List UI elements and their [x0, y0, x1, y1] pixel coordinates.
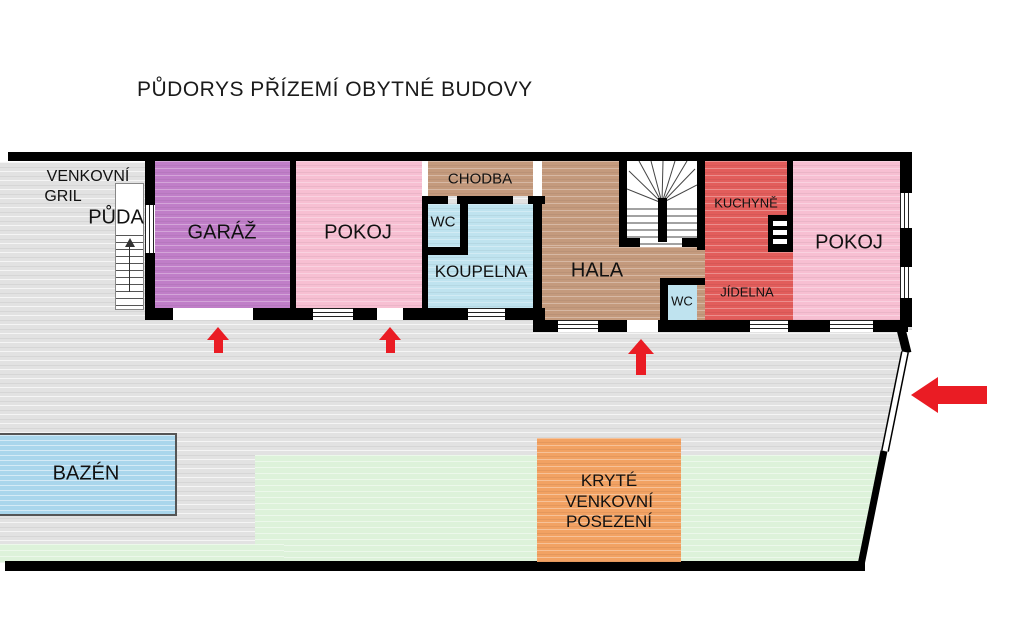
chimney	[768, 215, 793, 252]
window-right-bedroom-east-1	[900, 193, 912, 228]
window-right-bedroom-east-2	[900, 267, 912, 298]
door-left-bedroom	[377, 308, 403, 320]
wall-bath-hall	[533, 196, 542, 320]
wall-under-hallway-2	[457, 196, 513, 204]
door-hall-entrance	[627, 320, 658, 332]
wall-exterior-top	[148, 152, 910, 161]
window-garage-side	[145, 205, 155, 253]
wall-under-hallway-1	[422, 196, 448, 204]
wall-exterior-right	[900, 152, 912, 327]
stairs-up-arrow-line	[129, 246, 130, 292]
wall-stairs-stub-left	[619, 238, 640, 247]
wc-hall-label: WC	[671, 294, 693, 309]
window-right-bedroom-south	[830, 320, 873, 332]
fence-and-gate	[850, 325, 925, 570]
page-title: PŮDORYS PŘÍZEMÍ OBYTNÉ BUDOVY	[137, 78, 533, 102]
property-boundary-bottom	[5, 561, 865, 571]
attic-staircase	[115, 183, 144, 310]
wc-label: WC	[431, 214, 456, 231]
wall-wc-bottom	[428, 247, 468, 255]
wall-wc-hall-left	[660, 278, 668, 320]
seating-label-2: VENKOVNÍ	[565, 492, 653, 512]
pool-label: BAZÉN	[53, 463, 120, 486]
wall-kitchen-bedroom	[787, 161, 793, 217]
garage-door-opening	[173, 308, 253, 320]
wall-garage-bedroom	[290, 161, 296, 308]
floor-plan: PŮDORYS PŘÍZEMÍ OBYTNÉ BUDOVY BAZÉN KRYT…	[0, 0, 1024, 617]
window-dining	[750, 320, 788, 332]
wall-garden-top-left	[8, 152, 148, 161]
right-bedroom-label: POKOJ	[815, 232, 883, 255]
fence-stub	[901, 329, 907, 353]
fence-lower	[861, 451, 884, 565]
grill-label-2: GRIL	[44, 188, 81, 206]
gate-opening	[885, 352, 905, 451]
left-bedroom-label: POKOJ	[324, 222, 392, 245]
hall-label: HALA	[571, 260, 623, 283]
chimney-flue-1	[773, 221, 787, 226]
stairs-up-arrow-icon	[125, 238, 135, 247]
grill-label-1: VENKOVNÍ	[47, 168, 130, 186]
bathroom-label: KOUPELNA	[435, 262, 528, 282]
chimney-flue-3	[773, 239, 787, 244]
wall-stairs-divider	[658, 198, 667, 242]
window-bathroom	[468, 308, 505, 320]
chimney-flue-2	[773, 230, 787, 235]
window-left-bedroom	[313, 308, 353, 320]
gate-entrance-arrow-icon	[911, 377, 988, 413]
wall-stairs-right	[697, 161, 705, 250]
kitchen-label: KUCHYNĚ	[714, 196, 778, 211]
dining-label: JÍDELNA	[720, 285, 773, 300]
hallway-label: CHODBA	[448, 171, 512, 188]
door-hallway-hall	[533, 161, 542, 196]
garage-entrance-arrow-icon	[207, 327, 229, 353]
bedroom-entrance-arrow-icon	[379, 327, 401, 353]
wall-stairs-left	[619, 161, 627, 247]
wall-stairs-stub-right	[682, 238, 705, 247]
garage-label: GARÁŽ	[188, 222, 257, 245]
seating-label-1: KRYTÉ	[581, 471, 637, 491]
window-hall	[558, 320, 598, 332]
hall-entrance-arrow-icon	[628, 339, 654, 375]
wall-wc-right	[460, 204, 468, 247]
seating-label-3: POSEZENÍ	[566, 512, 652, 532]
attic-label: PŮDA	[88, 207, 144, 230]
door-hallway-bedroom	[422, 161, 428, 196]
